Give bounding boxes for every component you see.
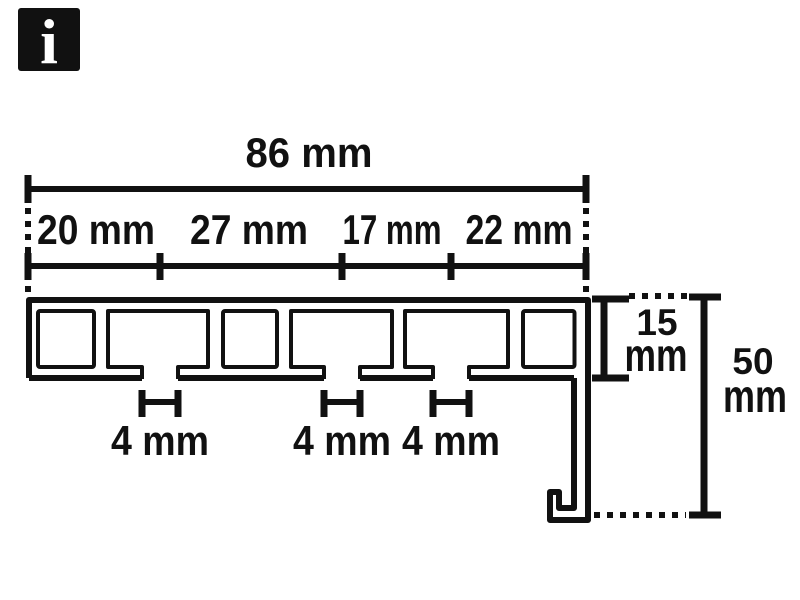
profile-chamber-closed bbox=[223, 311, 277, 367]
profile-outline bbox=[29, 300, 588, 520]
dim-slot-2: 4 mm bbox=[293, 390, 391, 464]
profile-chamber-closed bbox=[523, 311, 575, 367]
dim-total-width: 86 mm bbox=[28, 129, 586, 203]
segment-label-3: 17 mm bbox=[343, 206, 442, 253]
profile-chamber-closed bbox=[38, 311, 94, 367]
dim-slot-3: 4 mm bbox=[402, 390, 500, 464]
slot-dim-label-2: 4 mm bbox=[293, 417, 391, 464]
dim-total-width-label: 86 mm bbox=[246, 129, 373, 176]
profile-chamber-slotted bbox=[108, 311, 208, 379]
profile-chamber-slotted bbox=[291, 311, 392, 379]
dim-total-height: 50 mm bbox=[594, 296, 787, 515]
profile-outer-contour bbox=[29, 300, 588, 520]
segment-label-1: 20 mm bbox=[37, 206, 155, 253]
diagram-canvas: i 86 mm 20 mm 27 mm 17 mm 22 mm bbox=[0, 0, 800, 600]
segment-label-2: 27 mm bbox=[190, 206, 308, 253]
segment-label-4: 22 mm bbox=[466, 206, 573, 253]
slot-dim-label-1: 4 mm bbox=[111, 417, 209, 464]
dim-profile-height: 15 mm bbox=[592, 299, 688, 381]
curtain-rail-profile-diagram: i 86 mm 20 mm 27 mm 17 mm 22 mm bbox=[0, 0, 800, 600]
profile-chamber-slotted bbox=[405, 311, 508, 379]
dim-slot-1: 4 mm bbox=[111, 390, 209, 464]
dim-total-height-unit: mm bbox=[723, 370, 787, 422]
info-icon-glyph: i bbox=[40, 6, 58, 77]
slot-dim-label-3: 4 mm bbox=[402, 417, 500, 464]
dim-profile-height-unit: mm bbox=[625, 329, 688, 381]
info-icon: i bbox=[18, 6, 80, 77]
dim-segments: 20 mm 27 mm 17 mm 22 mm bbox=[28, 206, 586, 280]
